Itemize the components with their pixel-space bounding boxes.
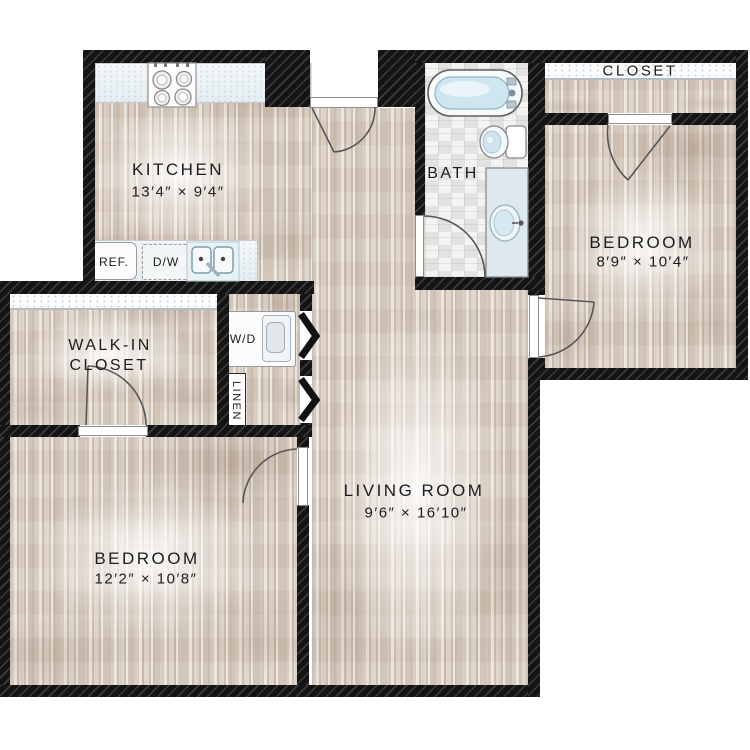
kitchen-top-counter [95, 63, 268, 103]
washer-dryer-label: W/D [230, 332, 256, 346]
closet-top-right-label: CLOSET [602, 63, 677, 80]
wall-mid-horizontal [0, 281, 314, 294]
walkin-door-threshold [78, 426, 148, 436]
bedroom-bottom-left-label: BEDROOM [94, 549, 199, 569]
floor-plan: KITCHEN 13′4″ × 9′4″ BATH CLOSET BEDROOM… [0, 0, 750, 750]
wall-outer-right [736, 50, 748, 380]
wall-walkin-bottom-right [146, 425, 312, 437]
wall-kitchen-left [83, 50, 95, 293]
refrigerator-label: REF. [99, 255, 129, 269]
washer-machine [262, 315, 291, 362]
wall-outer-left [0, 281, 10, 697]
walk-in-closet-label-line1: WALK-IN [68, 337, 152, 355]
wall-bath-bedroom-divider-upper [528, 63, 545, 295]
bedroom-tr-door-threshold [529, 295, 539, 358]
wall-walkin-bottom-left [0, 425, 80, 437]
wall-bottom [0, 685, 540, 697]
wall-bath-bottom [415, 277, 545, 290]
wall-bath-bedroom-divider-lower [528, 358, 545, 380]
wall-top-left [83, 50, 268, 63]
wall-bedroom-tr-bottom [528, 368, 748, 380]
wall-top-right [415, 50, 748, 63]
bedroom-bottom-left-dims: 12′2″ × 10′8″ [95, 571, 198, 588]
bath-door-threshold [415, 215, 424, 277]
living-room-label: LIVING ROOM [344, 481, 485, 501]
wall-living-right [528, 368, 540, 697]
dishwasher-label: D/W [153, 255, 179, 269]
closet-door-threshold [608, 114, 672, 124]
linen-label: LINEN [230, 381, 242, 421]
entry-door-threshold [310, 97, 378, 108]
wall-bath-left [415, 63, 425, 215]
walk-in-closet-label-line2: CLOSET [69, 357, 148, 375]
walk-in-closet-shelf [10, 294, 217, 310]
wall-walkin-laundry-divider [217, 294, 229, 425]
bedroom-bl-door-threshold [298, 447, 308, 506]
living-room-dims: 9′6″ × 16′10″ [365, 505, 468, 522]
kitchen-label: KITCHEN [132, 160, 224, 180]
wall-entry-block-left [265, 50, 310, 107]
bedroom-top-right-dims: 8′9″ × 10′4″ [596, 254, 689, 271]
wall-laundry-stub-top [300, 294, 312, 311]
wall-bedroom-bl-right-bottom [297, 505, 309, 685]
kitchen-dims: 13′4″ × 9′4″ [131, 184, 224, 201]
wall-closet-bottom-right [672, 113, 748, 125]
wall-laundry-stub-mid [300, 360, 312, 376]
washer-door [266, 322, 285, 353]
bath-label: BATH [427, 165, 478, 183]
bedroom-top-right-label: BEDROOM [589, 233, 694, 253]
